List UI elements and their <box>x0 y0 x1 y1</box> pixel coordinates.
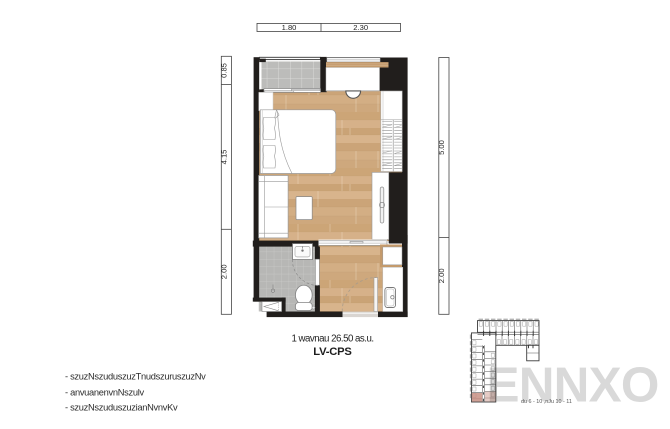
svg-text:2.00: 2.00 <box>437 268 446 283</box>
svg-text:1 wavnau 26.50 as.u.: 1 wavnau 26.50 as.u. <box>291 333 373 344</box>
svg-text:ENNXO: ENNXO <box>487 358 659 413</box>
svg-text:0.85: 0.85 <box>219 63 228 78</box>
svg-text:LV-CPS: LV-CPS <box>313 346 352 358</box>
svg-text:2.00: 2.00 <box>219 264 228 279</box>
svg-text:4.15: 4.15 <box>219 150 228 165</box>
svg-text:- szuzNszuduszuzianNvnvKv: - szuzNszuduszuzianNvnvKv <box>65 402 178 412</box>
svg-text:2.30: 2.30 <box>353 23 368 32</box>
svg-text:- anvuanenvnNszulv: - anvuanenvnNszulv <box>65 387 144 397</box>
svg-text:du 6 - 10 ,nJu 10 - 11: du 6 - 10 ,nJu 10 - 11 <box>521 399 572 405</box>
svg-text:1.80: 1.80 <box>282 23 297 32</box>
svg-text:5.00: 5.00 <box>437 140 446 155</box>
svg-text:- szuzNszuduszuzTnudszuruszuzN: - szuzNszuduszuzTnudszuruszuzNv <box>65 372 206 382</box>
